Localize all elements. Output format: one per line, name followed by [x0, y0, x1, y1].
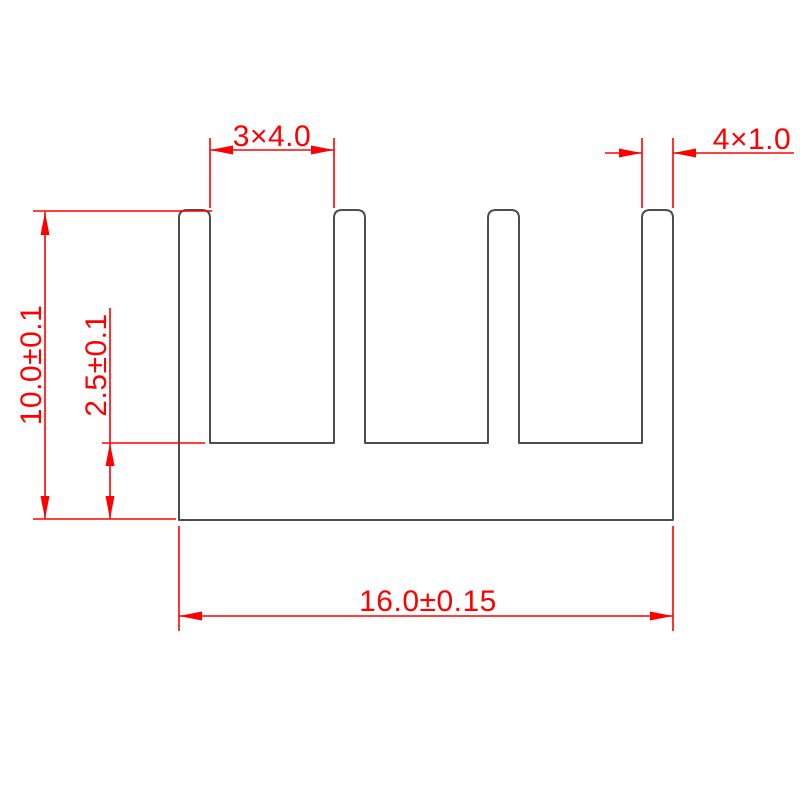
dimension-fin-thickness: 4×1.0	[605, 123, 794, 208]
arrowhead-right-icon	[311, 146, 334, 155]
dimension-label-base-thickness: 2.5±0.1	[80, 313, 113, 416]
dimension-label-overall-width: 16.0±0.15	[359, 585, 497, 618]
arrowhead-up-icon	[41, 212, 50, 235]
technical-drawing-canvas: 3×4.0 4×1.0 10.0±0.1 2.5±0.1 16.0±0.15	[0, 0, 800, 800]
arrowhead-left-icon	[179, 612, 202, 621]
arrowhead-left-icon	[673, 149, 696, 158]
arrowhead-left-icon	[210, 146, 233, 155]
dimension-label-fin-spacing: 3×4.0	[233, 120, 311, 153]
heatsink-profile-outline	[179, 210, 673, 520]
arrowhead-up-icon	[106, 443, 115, 466]
dimension-label-overall-height: 10.0±0.1	[15, 305, 48, 426]
arrowhead-down-icon	[41, 496, 50, 519]
arrowhead-right-icon	[619, 149, 642, 158]
arrowhead-right-icon	[650, 612, 673, 621]
dimension-overall-width: 16.0±0.15	[179, 526, 673, 631]
arrowhead-down-icon	[106, 496, 115, 519]
dimension-fin-spacing: 3×4.0	[210, 120, 334, 208]
dimension-label-fin-thickness: 4×1.0	[713, 123, 791, 156]
